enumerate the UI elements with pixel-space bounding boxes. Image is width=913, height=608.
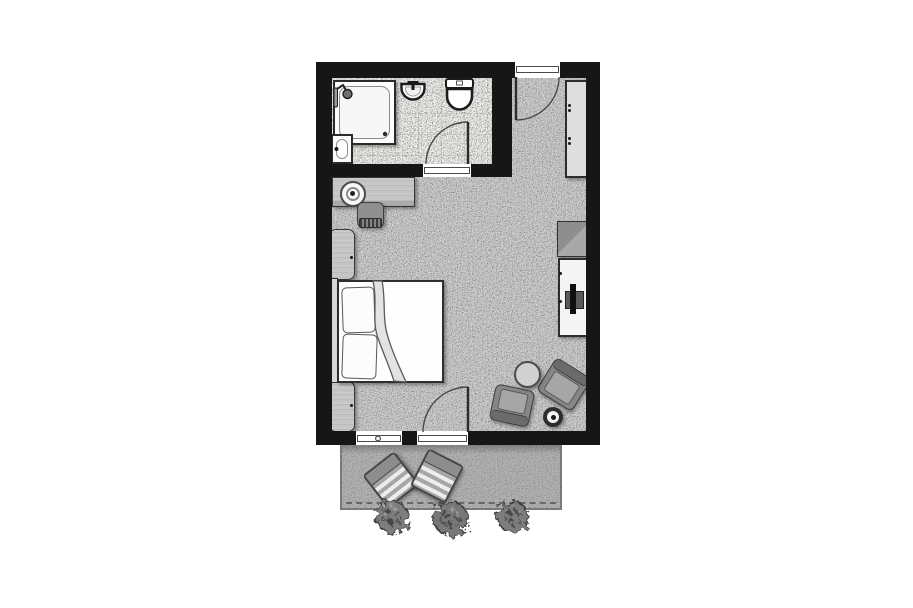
armchair-left	[489, 383, 536, 428]
terrace-door-threshold	[417, 432, 468, 445]
small-side-table-center	[551, 415, 556, 420]
terrace-wall-shadow	[342, 445, 560, 454]
wardrobe-closet	[565, 80, 588, 178]
desk-chair-backrest	[359, 218, 382, 228]
nightstand-knob	[350, 256, 353, 259]
desk-chair	[357, 202, 384, 228]
entrance-door-threshold	[515, 63, 560, 76]
wardrobe-handle	[568, 104, 571, 107]
wall-left	[316, 62, 332, 445]
wardrobe-handle	[568, 137, 571, 140]
wall-top-left	[316, 62, 515, 78]
wall-bottom-left	[316, 431, 356, 445]
double-bed	[337, 280, 444, 383]
bathroom-door-threshold	[423, 164, 471, 177]
tv-screen	[570, 284, 576, 314]
bathroom-door-frame	[424, 167, 470, 174]
wall-bottom-right	[468, 431, 586, 445]
shower-tray	[339, 86, 390, 139]
terrace-door-frame	[418, 435, 467, 442]
window-frame	[357, 435, 401, 442]
pillow	[341, 333, 378, 379]
nightstand-lower	[329, 381, 355, 432]
wall-bathroom-partition-right	[471, 164, 512, 177]
entrance-door-frame	[516, 66, 559, 73]
minibar-cabinet	[557, 221, 588, 257]
wall-right	[586, 62, 600, 445]
nightstand-knob	[350, 404, 353, 407]
floor-plan-canvas	[0, 0, 913, 608]
wardrobe-handle	[568, 142, 571, 145]
desk-lamp-center	[350, 191, 355, 196]
vanity-sink	[331, 134, 353, 164]
sideboard-knob	[559, 272, 562, 275]
small-side-table	[543, 407, 563, 427]
nightstand-upper	[329, 229, 355, 280]
sideboard-knob	[559, 300, 562, 303]
window-unit	[356, 432, 402, 445]
round-side-table	[514, 361, 541, 388]
wardrobe-handle	[568, 109, 571, 112]
wall-bathroom-partition-left	[316, 164, 423, 177]
vanity-basin	[336, 139, 348, 159]
tv-sideboard	[558, 258, 588, 337]
pillow	[341, 286, 376, 333]
terrace-edge-dashes	[346, 502, 556, 504]
wall-bathroom-pier	[492, 62, 512, 177]
wall-bottom-pier	[402, 431, 417, 445]
